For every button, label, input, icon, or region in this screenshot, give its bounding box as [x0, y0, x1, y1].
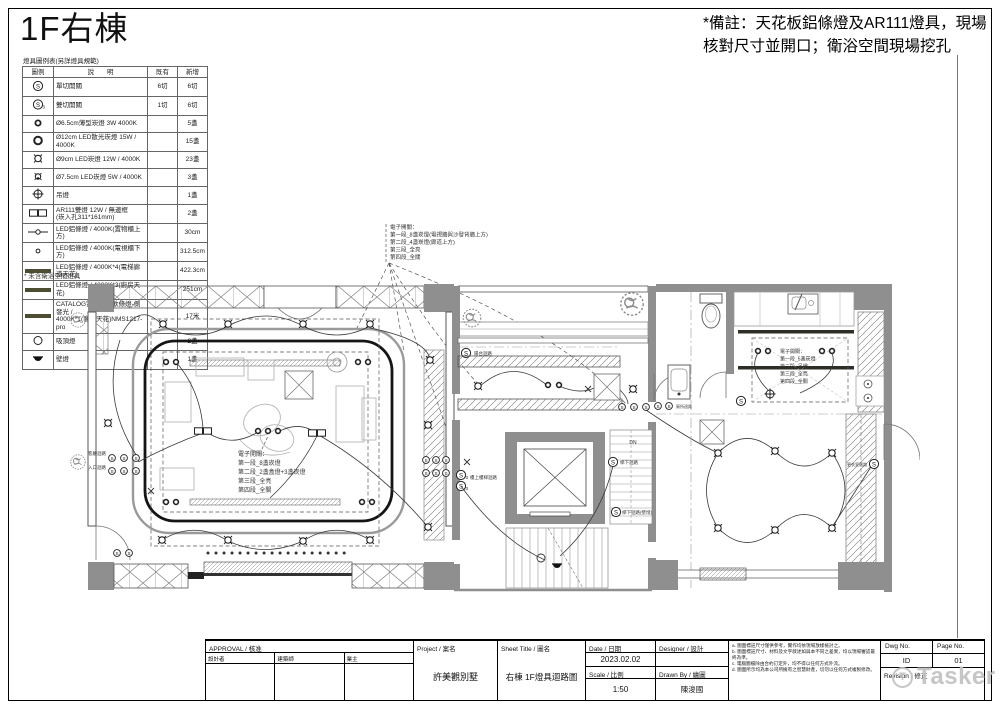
title-block: APPROVAL / 核准 設計者 建築師 業主 Project / 案名 許美…	[205, 639, 985, 701]
legend-row: 雙切開關1切6切	[23, 96, 208, 115]
designer-drawnby-section: Designer / 設計 Drawn By / 繪圖 陳浚國	[656, 641, 729, 700]
svg-text:電子開關：: 電子開關：	[390, 224, 418, 231]
svg-text:第三段_全亮: 第三段_全亮	[390, 246, 421, 254]
ceiling-lamp-icon	[23, 333, 54, 350]
svg-text:廁所迴路: 廁所迴路	[676, 403, 692, 409]
svg-text:入口迴路: 入口迴路	[88, 464, 106, 471]
legend-row: Ø6.5cm薄型崁燈 3W 4000K5盞	[23, 116, 208, 132]
wall-lamp-icon	[23, 351, 54, 369]
svg-text:梯下迴路(壁燈): 梯下迴路(壁燈)	[622, 509, 652, 516]
note-d: d. 圖面所示均為本公司所擁有之智慧財產，切勿以任何方式複製修改。	[732, 667, 877, 673]
legend-header: 圖例 說 明 既有 新增	[23, 67, 208, 78]
date-label: Date / 日期	[586, 641, 655, 653]
approval-label: APPROVAL / 核准	[206, 641, 413, 653]
small-dot-icon	[23, 243, 54, 262]
designer-value	[656, 653, 728, 667]
approval-section: APPROVAL / 核准 設計者 建築師 業主	[206, 641, 414, 700]
svg-text:電子開關：: 電子開關：	[238, 451, 268, 458]
svg-text:第四段_全關: 第四段_全關	[390, 253, 421, 261]
scale-value: 1:50	[586, 679, 655, 700]
led-strip-line-icon	[23, 224, 54, 243]
legend-caption: 燈具圖例表(另詳燈具規範)	[23, 55, 99, 65]
tasker-logo-icon: T	[892, 667, 913, 688]
legend-row: Ø12cm LED散光崁燈 15W / 4000K15盞	[23, 132, 208, 151]
drawnby-label: Drawn By / 繪圖	[656, 667, 728, 679]
scale-label: Scale / 比例	[586, 667, 655, 679]
svg-text:更衣室迴路: 更衣室迴路	[847, 461, 867, 467]
approval-col-designer: 設計者	[206, 653, 274, 664]
svg-text:客廳迴路: 客廳迴路	[88, 450, 106, 457]
svg-text:第一段_5盞崁燈: 第一段_5盞崁燈	[780, 356, 816, 363]
sheet-margin-line	[957, 55, 958, 638]
drawnby-value: 陳浚國	[656, 679, 728, 700]
ar111-icon	[23, 205, 54, 224]
tasker-watermark-text: Tasker	[917, 663, 996, 691]
project-section: Project / 案名 許美觀別墅	[414, 641, 498, 700]
date-scale-section: Date / 日期 2023.02.02 Scale / 比例 1:50	[586, 641, 656, 700]
living-room: 客廳迴路 入口迴路 電子開關： 第一段_8盞崁燈 第二段_2盞盒燈+3盞崁燈 第…	[71, 284, 454, 590]
note-b: b. 圖面標註尺寸、材料及文字敘述如與本不同之差異，均以現場審認最終為準。	[732, 649, 877, 661]
neon-strip-icon	[23, 299, 54, 333]
general-notes: a. 圖面標註尺寸僅供參考，實作均依現場放樣檢討之。 b. 圖面標註尺寸、材料及…	[729, 641, 881, 700]
tasker-watermark: T Tasker	[892, 663, 996, 691]
svg-text:第二段_2盞盒燈+3盞崁燈: 第二段_2盞盒燈+3盞崁燈	[238, 468, 306, 476]
drawing-sheet: S 3 S 1F右棟 燈具圖例表(另詳燈具規範) 圖例 說 明 既有 新增 單切…	[0, 0, 1000, 708]
sheet-title-section: Sheet Title / 圖名 右棟 1F燈具迴路圖	[498, 641, 586, 700]
page-no-label: Page No.	[933, 641, 984, 653]
svg-text:第二段_4盞崁燈(廊道上方): 第二段_4盞崁燈(廊道上方)	[390, 238, 455, 246]
legend-row: 單切開關6切6切	[23, 78, 208, 96]
project-name: 許美觀別墅	[414, 653, 497, 700]
sheet-title-label: Sheet Title / 圖名	[498, 641, 585, 653]
downlight-65-icon	[23, 116, 54, 132]
legend-row: 吊燈1盞	[23, 186, 208, 204]
svg-text:第二段_吊燈: 第二段_吊燈	[780, 363, 808, 370]
dn-label: DN	[629, 440, 637, 446]
date-value: 2023.02.02	[586, 653, 655, 667]
switch-double-icon	[23, 96, 54, 115]
sheet-title-value: 右棟 1F燈具迴路圖	[498, 653, 585, 700]
approval-col-owner: 業主	[345, 653, 413, 664]
svg-text:梯下迴路: 梯下迴路	[620, 459, 638, 466]
legend-row: Ø7.5cm LED崁燈 5W / 4000K3盞	[23, 169, 208, 186]
designer-label: Designer / 設計	[656, 641, 728, 653]
svg-text:第三段_全亮: 第三段_全亮	[780, 371, 808, 378]
svg-text:第一段_8盞崁燈: 第一段_8盞崁燈	[238, 459, 281, 467]
svg-text:第四段_全關: 第四段_全關	[780, 378, 808, 385]
page-title: 1F右棟	[20, 12, 129, 47]
floor-plan: 電子開關： 第一段_8盞崁燈(電視牆與沙發背牆上方) 第二段_4盞崁燈(廊道上方…	[70, 218, 920, 603]
elevator	[505, 432, 605, 524]
svg-text:第四段_全關: 第四段_全關	[238, 486, 271, 494]
downlight-75-icon	[23, 169, 54, 186]
bedroom: 更衣室迴路	[648, 414, 920, 590]
downlight-12-icon	[23, 132, 54, 151]
project-label: Project / 案名	[414, 641, 497, 653]
switch-single-icon	[23, 78, 54, 96]
svg-text:第一段_8盞崁燈(電視牆與沙發背牆上方): 第一段_8盞崁燈(電視牆與沙發背牆上方)	[390, 231, 488, 239]
led-bar-icon	[23, 280, 54, 299]
approval-col-architect: 建築師	[275, 653, 343, 664]
dwg-no-label: Dwg No.	[881, 641, 933, 653]
annotation-electronic-switch-living: 電子開關： 第一段_8盞崁燈 第二段_2盞盒燈+3盞崁燈 第三段_全亮 第四段_…	[238, 436, 306, 494]
downlight-9-icon	[23, 151, 54, 168]
pendant-lamp-icon	[23, 186, 54, 204]
legend-row: Ø9cm LED崁燈 12W / 4000K23盞	[23, 151, 208, 168]
svg-text:電子開關：: 電子開關：	[780, 348, 805, 355]
svg-text:第三段_全亮: 第三段_全亮	[238, 477, 271, 485]
remark-note: *備註：天花板鋁條燈及AR111燈具，現場 核對尺寸並開口；衛浴空間現場挖孔	[703, 12, 988, 59]
svg-text:樓上樓梯迴路: 樓上樓梯迴路	[470, 474, 497, 481]
